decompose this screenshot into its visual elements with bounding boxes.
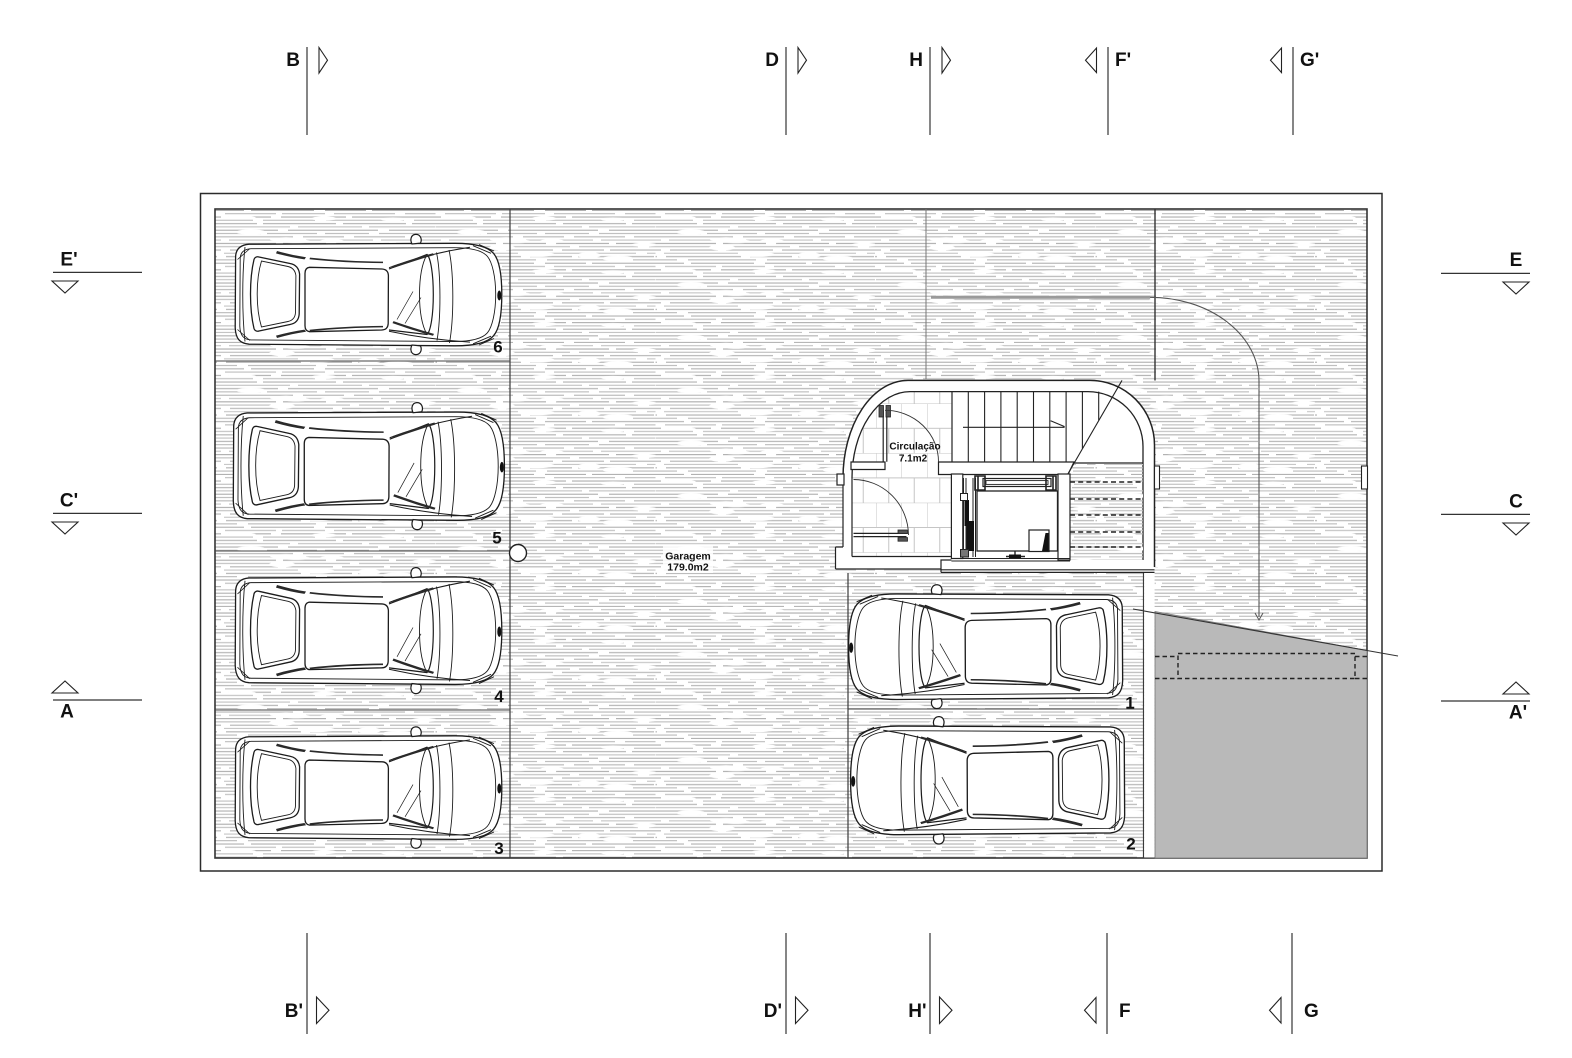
svg-text:B: B bbox=[286, 50, 300, 71]
svg-text:F: F bbox=[1119, 1001, 1131, 1022]
svg-text:A: A bbox=[60, 702, 74, 723]
svg-text:Circulação: Circulação bbox=[889, 442, 940, 453]
svg-text:C: C bbox=[1509, 492, 1523, 513]
svg-text:4: 4 bbox=[494, 687, 504, 706]
svg-text:1: 1 bbox=[1125, 694, 1134, 713]
svg-text:A': A' bbox=[1509, 703, 1527, 724]
svg-text:5: 5 bbox=[492, 529, 501, 548]
svg-text:6: 6 bbox=[493, 338, 502, 357]
svg-text:3: 3 bbox=[494, 839, 503, 858]
svg-text:E: E bbox=[1510, 250, 1523, 271]
svg-text:G': G' bbox=[1300, 50, 1319, 71]
svg-text:E': E' bbox=[60, 250, 77, 271]
svg-text:B': B' bbox=[285, 1001, 303, 1022]
svg-text:H: H bbox=[909, 50, 923, 71]
svg-text:179.0m2: 179.0m2 bbox=[667, 562, 709, 574]
svg-text:D: D bbox=[765, 50, 779, 71]
svg-text:F': F' bbox=[1115, 50, 1131, 71]
svg-text:C': C' bbox=[60, 491, 78, 512]
svg-text:G: G bbox=[1304, 1001, 1319, 1022]
svg-text:H': H' bbox=[908, 1001, 926, 1022]
svg-text:D': D' bbox=[764, 1001, 782, 1022]
svg-text:2: 2 bbox=[1126, 835, 1135, 854]
svg-text:7.1m2: 7.1m2 bbox=[899, 454, 928, 465]
